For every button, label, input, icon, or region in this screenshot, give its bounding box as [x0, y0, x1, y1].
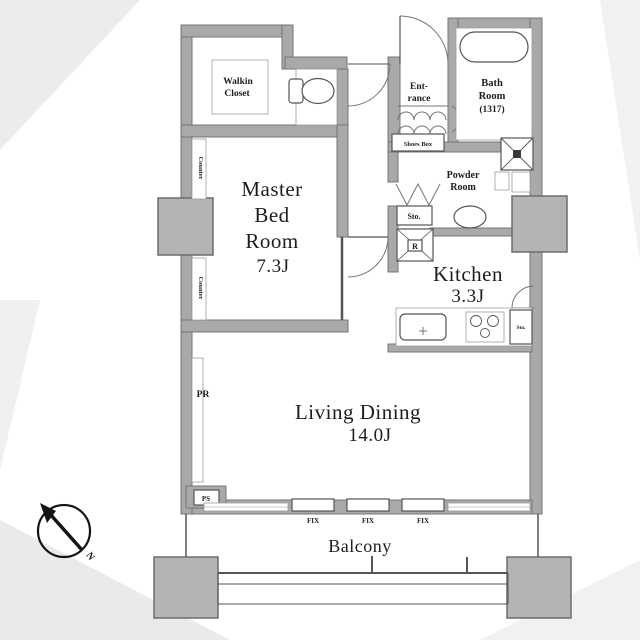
- entrance-label: Ent-: [410, 82, 428, 92]
- kitchen-label: Kitchen: [433, 262, 503, 286]
- refrigerator-label: R: [412, 242, 418, 251]
- powder-room-label: Powder: [447, 170, 480, 181]
- pillar-left: [158, 198, 213, 255]
- floorplan-drawing: N Walkin Closet Ent- rance Bath Room (13…: [0, 0, 640, 640]
- wall-segment: [285, 57, 347, 69]
- fix-window: [292, 499, 334, 511]
- hall-storage-label: Sto.: [407, 212, 420, 221]
- powder-basin: [454, 206, 486, 228]
- fix-window-label: FIX: [417, 517, 429, 525]
- pillar-right: [512, 196, 567, 252]
- powder-cabinet: [512, 172, 530, 192]
- counter-label-upper: Counter: [197, 156, 204, 179]
- compass-north-label: N: [83, 550, 97, 563]
- pipe-rack-strip: [192, 358, 203, 482]
- washer-drain: [513, 150, 521, 158]
- wall-segment: [337, 69, 348, 125]
- walkin-closet-label: Walkin: [223, 77, 253, 87]
- living-dining-label: Living Dining: [295, 400, 421, 424]
- bath-room-label: Bath: [481, 78, 503, 89]
- master-bed-room-size: 7.3J: [256, 256, 289, 277]
- fix-window: [402, 499, 444, 511]
- bathtub: [460, 32, 528, 62]
- entrance-label: rance: [408, 94, 431, 104]
- counter-label-lower: Counter: [197, 276, 204, 299]
- wall-segment: [181, 125, 348, 137]
- fix-window-label: FIX: [362, 517, 374, 525]
- toilet-bowl: [302, 79, 334, 104]
- powder-cabinet: [495, 172, 509, 190]
- wall-segment: [181, 25, 293, 37]
- wall-segment: [388, 152, 398, 182]
- shoes-box-label: Shoes Box: [404, 141, 433, 148]
- wall-segment: [181, 320, 348, 332]
- pipe-rack-label: PR: [197, 390, 210, 400]
- wall-segment: [181, 25, 192, 514]
- pipe-space-label: PS: [202, 495, 210, 503]
- floorplan-page: N Walkin Closet Ent- rance Bath Room (13…: [0, 0, 640, 640]
- toilet-tank: [289, 79, 303, 103]
- fix-window: [347, 499, 389, 511]
- balcony-label: Balcony: [328, 536, 392, 556]
- kitchen-size: 3.3J: [451, 286, 484, 307]
- fix-window-label: FIX: [307, 517, 319, 525]
- pillar-balcony-right: [507, 557, 571, 618]
- master-bed-room-label: Bed: [254, 203, 289, 227]
- master-bed-room-label: Master: [241, 177, 302, 201]
- walkin-closet-label: Closet: [224, 89, 250, 99]
- walkin-closet-inner: [212, 60, 268, 114]
- kitchen-storage-label: Sto.: [516, 325, 526, 331]
- bath-room-label: Room: [479, 91, 506, 102]
- compass-needle: [50, 514, 82, 550]
- bath-room-size: (1317): [479, 104, 504, 115]
- balcony-structure: [186, 514, 538, 604]
- master-bed-room-label: Room: [245, 229, 298, 253]
- powder-room-label: Room: [450, 182, 476, 193]
- wall-segment: [337, 125, 348, 237]
- pillar-balcony-left: [154, 557, 218, 618]
- living-dining-size: 14.0J: [348, 425, 391, 446]
